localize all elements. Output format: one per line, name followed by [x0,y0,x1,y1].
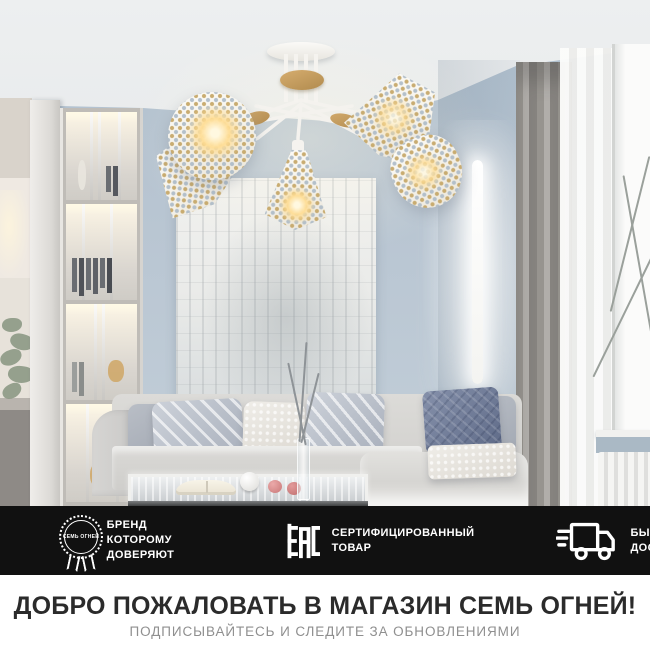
welcome-subtitle: ПОДПИСЫВАЙТЕСЬ И СЛЕДИТЕ ЗА ОБНОВЛЕНИЯМИ [0,624,650,639]
badge-certified: ЕАС СЕРТИФИЦИРОВАННЫЙ ТОВАР [284,518,475,564]
room-photo [0,0,650,506]
kitchen-cabinets [0,98,32,506]
shelf-mullion [90,112,93,200]
open-book [176,480,236,495]
welcome-title: ДОБРО ПОЖАЛОВАТЬ В МАГАЗИН СЕМЬ ОГНЕЙ! [0,592,650,621]
shelf-cell [66,112,137,200]
shelf-mullion [98,112,101,200]
kitchen-backlight [0,190,30,280]
badge-label-line: БЫСТРАЯ [630,526,650,541]
white-chaise-pillow [427,442,516,479]
brand-seal-icon: СЕМЬ ОГНЕЙ [56,515,95,567]
radiator [598,452,650,506]
badge-brand-trust: СЕМЬ ОГНЕЙ БРЕНД КОТОРОМУ ДОВЕРЯЮТ [56,515,188,567]
shelf-mullion [94,304,97,400]
badge-label: БРЕНД КОТОРОМУ ДОВЕРЯЮТ [107,518,188,563]
badge-label-line: ДОСТАВКА [630,541,650,556]
shelf-mullion [118,112,121,200]
gold-decor [108,360,124,382]
badge-fast-delivery: БЫСТРАЯ ДОСТАВКА [556,519,650,563]
seal-ribbon [81,554,95,572]
wall-pillar [30,100,60,506]
lamp-shade-left [168,92,256,180]
shelf-cell [66,204,137,300]
shelf-mullion [102,304,105,400]
wall-under-window [596,437,650,453]
badge-label-line: БРЕНД КОТОРОМУ [107,518,188,548]
glass-vase [297,438,310,500]
footer: ДОБРО ПОЖАЛОВАТЬ В МАГАЗИН СЕМЬ ОГНЕЙ! П… [0,575,650,650]
badge-label-line: ДОВЕРЯЮТ [107,548,188,563]
window-sill [596,430,650,437]
eac-mark-icon [284,518,320,564]
badge-label-line: СЕРТИФИЦИРОВАННЫЙ [332,526,475,541]
badge-label-line: ТОВАР [332,541,475,556]
badge-label: СЕРТИФИЦИРОВАННЫЙ ТОВАР [332,526,475,556]
shelf-cell [66,304,137,400]
promo-poster: СЕМЬ ОГНЕЙ БРЕНД КОТОРОМУ ДОВЕРЯЮТ ЕАС [0,0,650,650]
white-teapot [240,472,259,491]
apple [268,480,282,493]
badge-label: БЫСТРАЯ ДОСТАВКА [630,526,650,556]
badge-bar: СЕМЬ ОГНЕЙ БРЕНД КОТОРОМУ ДОВЕРЯЮТ ЕАС [0,506,650,575]
delivery-truck-icon [556,519,618,563]
candlestick [78,160,86,190]
seal-text: СЕМЬ ОГНЕЙ [63,534,99,540]
vertical-led-lamp [472,160,483,384]
seal-ribbon [66,554,80,572]
wood-accent-disc [280,70,324,90]
shelf-mullion [86,404,89,502]
seal-inner-ring: СЕМЬ ОГНЕЙ [64,520,98,554]
